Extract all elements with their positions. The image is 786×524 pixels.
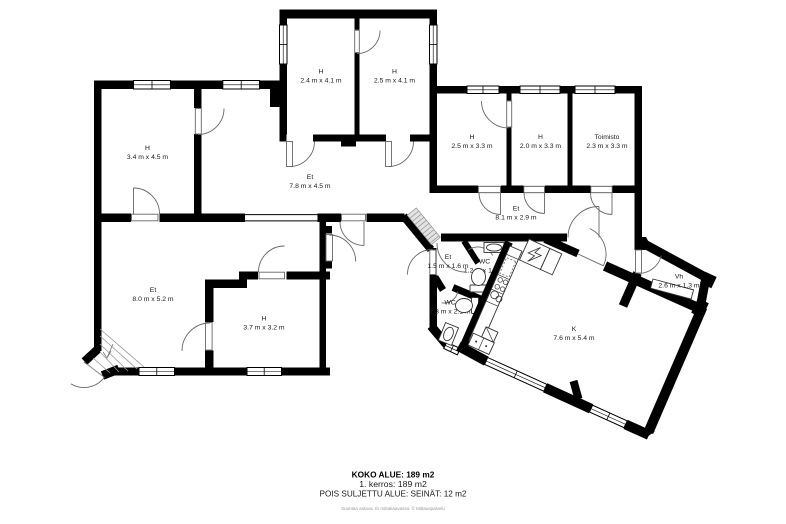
svg-text:2.3 m x 3.3 m: 2.3 m x 3.3 m xyxy=(586,143,628,150)
svg-text:3.7 m x 3.2 m: 3.7 m x 3.2 m xyxy=(243,325,285,332)
svg-text:POIS SULJETTU ALUE: SEINÄT: 12: POIS SULJETTU ALUE: SEINÄT: 12 m2 xyxy=(320,489,467,499)
svg-text:KOKO ALUE: 189 m2: KOKO ALUE: 189 m2 xyxy=(352,470,435,480)
svg-text:H: H xyxy=(262,316,267,323)
svg-text:2.0 m x 3.3 m: 2.0 m x 3.3 m xyxy=(520,143,562,150)
svg-text:8.1 m x 2.9 m: 8.1 m x 2.9 m xyxy=(495,215,537,222)
svg-text:1.5 m x 1.6 m: 1.5 m x 1.6 m xyxy=(427,263,469,270)
svg-text:Et: Et xyxy=(445,254,452,261)
svg-text:H: H xyxy=(538,134,543,141)
svg-text:7.6 m x 5.4 m: 7.6 m x 5.4 m xyxy=(553,335,595,342)
svg-text:H: H xyxy=(145,145,150,152)
svg-text:WC: WC xyxy=(444,300,455,307)
svg-text:1. kerros: 189 m2: 1. kerros: 189 m2 xyxy=(359,479,427,489)
svg-text:Et: Et xyxy=(513,206,520,213)
svg-text:Toimisto: Toimisto xyxy=(595,134,620,141)
svg-text:7.8 m x 4.5 m: 7.8 m x 4.5 m xyxy=(289,183,331,190)
svg-text:WC: WC xyxy=(479,259,490,266)
svg-text:Et: Et xyxy=(307,174,314,181)
svg-text:H: H xyxy=(392,69,397,76)
svg-text:H: H xyxy=(470,134,475,141)
svg-text:8.0 m x 5.2 m: 8.0 m x 5.2 m xyxy=(132,296,174,303)
svg-text:2.6 m x 1.3 m: 2.6 m x 1.3 m xyxy=(658,283,700,290)
svg-text:H: H xyxy=(319,69,324,76)
svg-text:2.5 m x 4.1 m: 2.5 m x 4.1 m xyxy=(374,78,416,85)
svg-text:3.4 m x 4.5 m: 3.4 m x 4.5 m xyxy=(127,154,169,161)
svg-text:Et: Et xyxy=(150,287,157,294)
svg-text:2.4 m x 4.1 m: 2.4 m x 4.1 m xyxy=(300,78,342,85)
svg-text:2.5 m x 3.3 m: 2.5 m x 3.3 m xyxy=(451,143,493,150)
svg-text:Suuntaa antava. Ei mittakaavas: Suuntaa antava. Ei mittakaavassa. © Mitt… xyxy=(341,505,445,511)
svg-text:Vh: Vh xyxy=(675,274,684,281)
svg-text:K: K xyxy=(572,326,577,333)
